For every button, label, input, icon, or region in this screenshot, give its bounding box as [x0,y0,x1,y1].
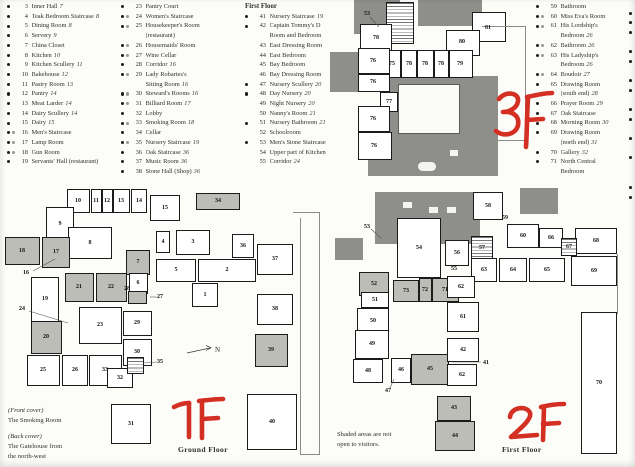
open-bullet-icon [12,131,15,134]
bullet-icon [536,102,539,105]
room-number: 71 [442,287,448,293]
open-bullet-icon [541,44,544,47]
room-number: 80 [459,39,465,45]
bullet-icon [7,122,10,125]
bullet-icon [7,5,10,8]
legend-item: 47Nursery Scullery20 [245,80,333,90]
bullet-icon [7,92,10,95]
room-number: 9 [59,221,62,227]
open-bullet-icon [12,141,15,144]
room-number: 81 [485,25,491,31]
bullet-icon [7,102,10,105]
room-number: 78 [422,61,428,67]
bullet-icon [121,44,124,47]
note-line: open to visitors. [337,440,391,450]
bullet-icon [245,141,248,144]
legend-column-4: 59Bathroom60Miss Eva's Room61His Lordshi… [536,2,633,177]
bullet-icon [121,151,124,154]
room-number: 64 [510,267,516,273]
room-number: 3 [192,239,195,245]
roof-window [447,207,456,213]
room-number: 41 [483,360,489,366]
wall-line [300,218,301,455]
room-number: 26 [72,367,78,373]
room-number: 11 [93,198,99,204]
room-number: 54 [416,245,422,251]
bullet-icon [7,141,10,144]
bullet-icon [121,92,124,95]
room-number: 34 [215,198,221,204]
room-number: 21 [76,284,82,290]
legend-item: 10Bakehouse12 [7,70,120,80]
room-number: 19 [42,296,48,302]
open-bullet-icon [126,122,129,125]
bullet-icon [121,63,124,66]
room-number: 50 [370,318,376,324]
legend-item: 51Nursery Bathroom21 [245,118,333,128]
room-number: 28 [124,286,130,292]
room-number: 24 [19,306,25,312]
legend-item: 26Housemaids' Room [121,41,243,51]
room-number: 42 [460,347,466,353]
bullet-icon [536,160,539,163]
bullet-icon [629,186,632,189]
legend-heading: First Floor [245,2,333,12]
room-number: 13 [118,198,124,204]
legend-item: 48Day Nursery20 [245,89,333,99]
room-number: 37 [272,256,278,262]
scanned-guidebook-page: { "colors": {"red_annotation": "#d32f23"… [0,0,635,467]
roof-window [403,202,412,208]
legend-item: 3Inner Hall7 [7,2,120,12]
room-number: 78 [373,35,379,41]
room-number: 5 [175,267,178,273]
legend-item: 14Dairy Scullery14 [7,109,120,119]
room-number: 53 [364,11,370,17]
bullet-icon [121,54,124,57]
bullet-icon [7,15,10,18]
bullet-icon [121,5,124,8]
legend-item: 34Cellar [121,128,243,138]
bullet-icon [245,122,248,125]
room-number: 12 [104,198,110,204]
wall-line [525,26,526,142]
room-number: 75 [389,61,395,67]
bullet-icon [629,118,632,121]
room-number: 23 [97,322,103,328]
roof-window [429,207,438,213]
room-number: 56 [454,250,460,256]
room-number: 69 [591,268,597,274]
cover-notes: (Front cover) The Smoking Room (Back cov… [8,406,62,462]
room-number: 8 [89,240,92,246]
bullet-icon [536,112,539,115]
legend-column-2: 23Pantry Court24Women's Staircase25House… [121,2,243,177]
legend-item: 12Pantry14 [7,89,120,99]
open-bullet-icon [541,15,544,18]
room-number: 57 [479,245,485,251]
room-number: 47 [385,388,391,394]
legend-item: 4Teak Bedroom Staircase8 [7,12,120,22]
room-number: 76 [370,116,376,122]
wall-line [498,140,526,141]
open-bullet-icon [126,25,129,28]
room-number: 76 [370,58,376,64]
roof-area [520,188,558,214]
open-bullet-icon [126,73,129,76]
bullet-icon [245,83,248,86]
legend-item: 25Housekeeper's Room(restaurant) [121,21,243,40]
bullet-icon [121,141,124,144]
bullet-icon [629,50,632,53]
bullet-icon [7,151,10,154]
bullet-icon [629,31,632,34]
legend-item: 30Steward's Rooms16 [121,89,243,99]
bullet-icon [536,44,539,47]
bullet-icon [536,73,539,76]
room-number: 36 [240,243,246,249]
room-number: 68 [593,238,599,244]
roof-window [418,162,436,171]
room-number: 40 [269,419,275,425]
wall-line [300,454,320,455]
bullet-icon [629,79,632,82]
open-bullet-icon [126,44,129,47]
room-number: 35 [157,359,163,365]
room-number: 16 [23,270,29,276]
bullet-icon [629,21,632,24]
note-line: Shaded areas are not [337,430,391,440]
bullet-icon [7,131,10,134]
room-number: 51 [372,297,378,303]
legend-item: 65Drawing Room(south end)28 [536,80,633,99]
room-number: 6 [137,280,140,286]
room-number: 65 [544,267,550,273]
bullet-icon [629,89,632,92]
back-cover-value: The Gatehouse from [8,442,62,452]
bullet-icon [121,122,124,125]
bullet-icon [536,15,539,18]
room-number: 29 [134,320,140,326]
room-number: 48 [365,368,371,374]
legend-item: 41Nursery Staircase19 [245,12,333,22]
bullet-icon [536,54,539,57]
bullet-icon [629,137,632,140]
legend-item: 59Bathroom [536,2,633,12]
room-number: 58 [485,203,491,209]
legend-item: 32Lobby [121,109,243,119]
roof-area [330,52,360,92]
bullet-icon [629,12,632,15]
room-number: 66 [548,235,554,241]
room-number: 20 [43,334,49,340]
bullet-icon [536,25,539,28]
room-number: 43 [451,405,457,411]
first-floor-caption: First Floor [502,445,542,454]
room-number: 18 [19,248,25,254]
bullet-icon [7,160,10,163]
bullet-icon [121,73,124,76]
bullet-icon [7,34,10,37]
open-bullet-icon [541,25,544,28]
room-number: 79 [457,61,463,67]
room-number: 78 [406,61,412,67]
wall-line [293,212,320,213]
legend-item: 69Drawing Room(north end)31 [536,128,633,147]
legend-item: 16Men's Staircase [7,128,120,138]
legend-item: 15Dairy15 [7,118,120,128]
legend-item: 63His Ladyship'sBedroom26 [536,51,633,70]
room-number: 77 [386,99,392,105]
open-bullet-icon [12,151,15,154]
roof-window [450,150,458,156]
legend-item: 24Women's Staircase [121,12,243,22]
bullet-icon [629,156,632,159]
legend-item: 46Bay Dressing Room [245,70,333,80]
open-bullet-icon [126,92,129,95]
back-cover-value: the north-west [8,452,62,462]
bullet-icon [536,122,539,125]
room-number: 52 [371,281,377,287]
staircase [127,357,144,374]
room-number: 7 [137,259,140,265]
legend-column-1: 3Inner Hall74Teak Bedroom Staircase85Din… [7,2,120,167]
legend-item: 17Lamp Room [7,138,120,148]
legend-item: 55Corridor24 [245,157,333,167]
legend-item: 33Smoking Room18 [121,118,243,128]
bullet-icon [7,73,10,76]
front-cover-label: (Front cover) [8,406,62,416]
open-bullet-icon [541,73,544,76]
room-number: 63 [481,267,487,273]
room-number: 44 [452,433,458,439]
legend-item: 7China Closet [7,41,120,51]
legend-item: 50Nanny's Room21 [245,109,333,119]
room-number: 72 [422,287,428,293]
room-number: 45 [427,366,433,372]
bullet-icon [7,63,10,66]
room-number: 39 [268,347,274,353]
legend-item: 23Pantry Court [121,2,243,12]
bullet-icon [629,60,632,63]
room-number: 38 [272,306,278,312]
courtyard [398,84,460,134]
legend-item: 43East Dressing Room [245,41,333,51]
legend-item: 52Schoolroom [245,128,333,138]
legend-item: 28Corridor16 [121,60,243,70]
room-number: 25 [40,367,46,373]
room-number: 31 [128,421,134,427]
open-bullet-icon [126,54,129,57]
legend-item: 9Kitchen Scullery11 [7,60,120,70]
bullet-icon [245,25,248,28]
bullet-icon [245,92,248,95]
bullet-icon [536,151,539,154]
room-number: 76 [370,79,376,85]
bullet-icon [7,83,10,86]
wall-line [319,212,320,455]
room-number: 22 [108,284,114,290]
legend-item: 66Prayer Room29 [536,99,633,109]
legend-item: 68Morning Room30 [536,118,633,128]
legend-item: 35Nursery Staircase19 [121,138,243,148]
legend-item: 62Bathroom26 [536,41,633,51]
room-number: 49 [369,341,375,347]
room-number: 10 [75,198,81,204]
legend-item: 61His Lordship'sBedroom26 [536,21,633,40]
legend-item: 44East Bedroom [245,51,333,61]
legend-item: 60Miss Eva's Room [536,12,633,22]
open-bullet-icon [126,15,129,18]
legend-item: 64Boudoir27 [536,70,633,80]
legend-item: 8Kitchen10 [7,51,120,61]
bullet-icon [536,83,539,86]
room-number: 27 [157,294,163,300]
bullet-icon [121,131,124,134]
legend-item: 71North CentralBedroom [536,157,633,176]
plan-second-floor: 5378818075787878797676777676 [330,0,535,178]
legend-item: 31Billiard Room17 [121,99,243,109]
bullet-icon [121,160,124,163]
bullet-icon [629,108,632,111]
bullet-icon [536,131,539,134]
bullet-icon [121,112,124,115]
legend-item: 29Lady Robartes'sSitting Room16 [121,70,243,89]
room-shaded [128,291,147,304]
open-bullet-icon [541,54,544,57]
legend-item: 19Servants' Hall (restaurant) [7,157,120,167]
open-bullet-icon [126,141,129,144]
legend-item: 38Stone Hall (Shop)36 [121,167,243,177]
room-number: 30 [134,349,140,355]
ground-floor-caption: Ground Floor [178,445,228,454]
room-number: 73 [403,288,409,294]
legend-item: 36Oak Staircase36 [121,148,243,158]
legend-item: 45Bay Bedroom [245,60,333,70]
room-number: 67 [566,244,572,250]
room-number: 61 [460,314,466,320]
room-number: 14 [136,198,142,204]
room-number: 70 [596,380,602,386]
roof-area [335,238,363,260]
bullet-icon [7,25,10,28]
open-bullet-icon [126,102,129,105]
wall-line [617,254,618,314]
room-number: 32 [117,375,123,381]
legend-item: 53Men's Stone Staircase [245,138,333,148]
bullet-icon [7,44,10,47]
room-number: 53 [364,224,370,230]
front-cover-value: The Smoking Room [8,416,62,426]
room-number: 33 [102,367,108,373]
legend-item: 6Servery9 [7,31,120,41]
room-number: 59 [502,215,508,221]
room-number: 76 [371,143,377,149]
legend-item: 18Gun Room [7,148,120,158]
room-number: 78 [438,61,444,67]
plan-first-floor: 5354585960666768575655636465695273727162… [335,180,635,467]
room-number: 46 [398,367,404,373]
legend-item: 5Dining Room8 [7,21,120,31]
back-cover-label: (Back cover) [8,432,62,442]
room-number: 62 [458,284,464,290]
room-number: 60 [520,233,526,239]
room-number: 62 [459,372,465,378]
room-number: 4 [162,239,165,245]
bullet-icon [121,15,124,18]
legend-item: 42Captain Tommy's DRoom and Bedroom [245,21,333,40]
legend-item: 27Wine Cellar [121,51,243,61]
legend-item: 11Pastry Room13 [7,80,120,90]
bullet-icon [7,112,10,115]
legend-column-3: First Floor41Nursery Staircase1942Captai… [245,2,333,167]
room-number: 17 [53,249,59,255]
legend-item: 49Night Nursery20 [245,99,333,109]
bullet-icon [629,196,632,199]
legend-item: 37Music Room36 [121,157,243,167]
bullet-icon [121,102,124,105]
bullet-icon [7,54,10,57]
room-number: 15 [162,205,168,211]
bullet-icon [121,170,124,173]
bullet-icon [121,25,124,28]
room-number: 2 [226,267,229,273]
room-number: 1 [204,292,207,298]
legend-item: 70Gallery32 [536,148,633,158]
legend-item: 13Meat Larder14 [7,99,120,109]
legend-item: 67Oak Staircase [536,109,633,119]
bullet-icon [245,15,248,18]
shaded-areas-note: Shaded areas are not open to visitors. [337,430,391,450]
room-number: 55 [451,266,457,272]
bullet-icon [536,5,539,8]
legend-item: 54Upper part of Kitchen [245,148,333,158]
